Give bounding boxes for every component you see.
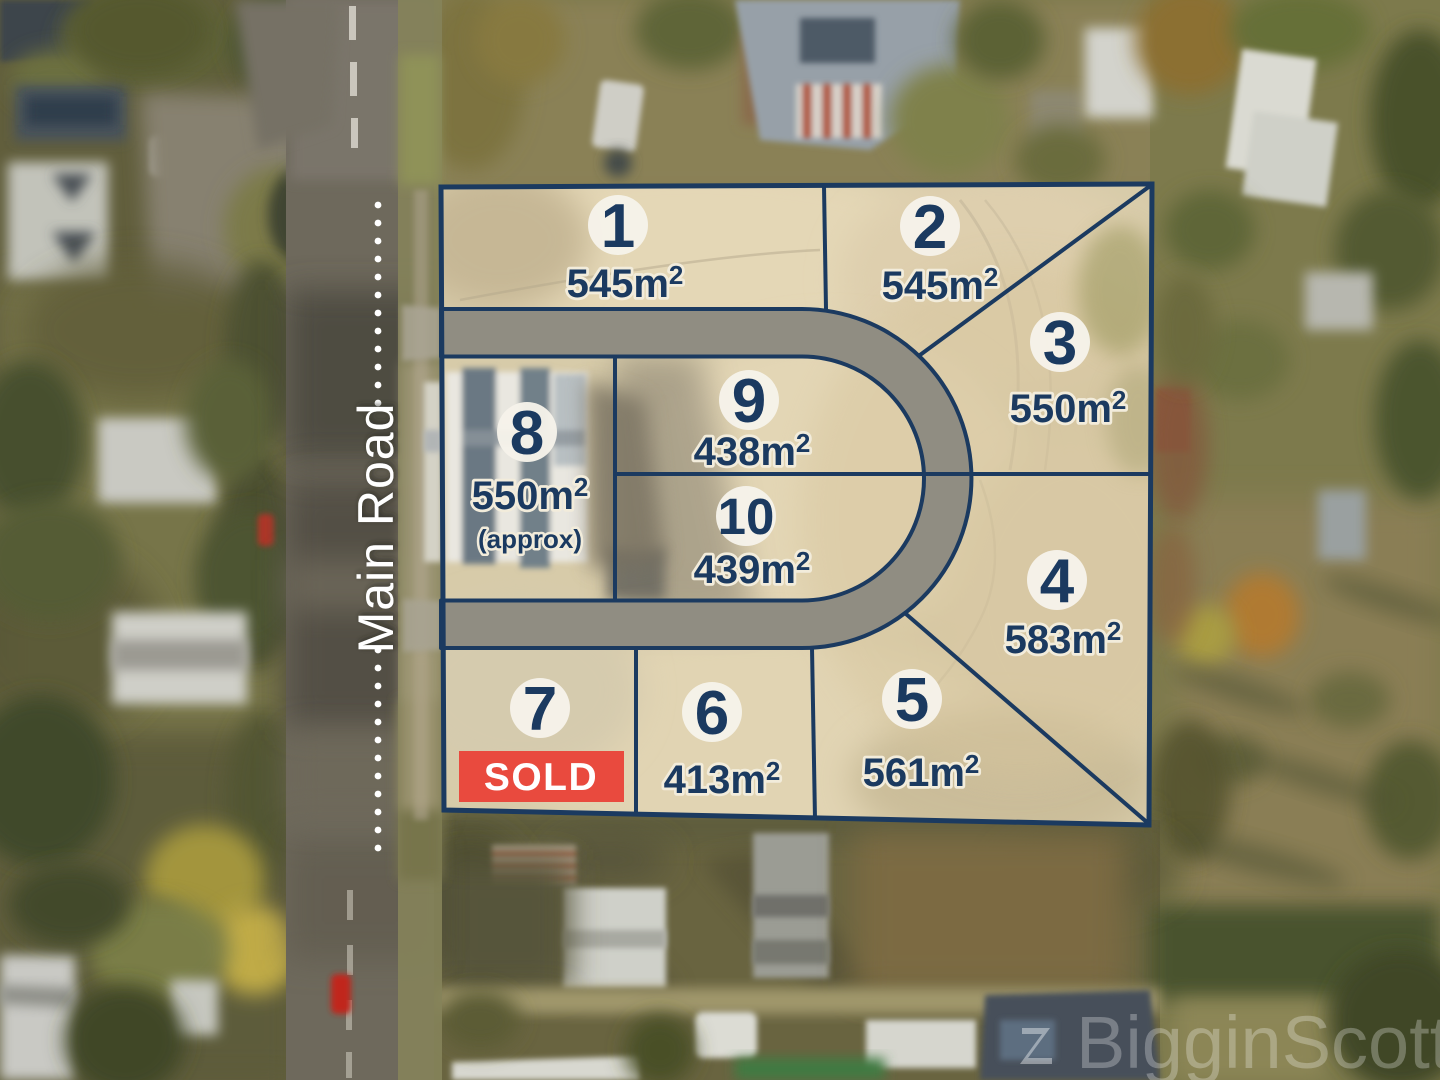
svg-text:583m2: 583m2 [1005, 616, 1122, 662]
svg-text:439m2: 439m2 [694, 546, 811, 592]
svg-text:4: 4 [1040, 547, 1075, 616]
svg-text:413m2: 413m2 [664, 756, 781, 802]
svg-text:2: 2 [913, 193, 947, 262]
svg-text:3: 3 [1043, 309, 1077, 378]
svg-text:8: 8 [510, 399, 544, 468]
svg-text:545m2: 545m2 [882, 262, 999, 308]
svg-text:(approx): (approx) [478, 524, 582, 554]
svg-text:5: 5 [895, 666, 929, 735]
svg-text:6: 6 [695, 679, 729, 748]
svg-text:550m2: 550m2 [1010, 385, 1127, 431]
svg-text:9: 9 [732, 367, 766, 436]
svg-text:1: 1 [601, 192, 635, 261]
svg-text:10: 10 [718, 488, 775, 545]
svg-text:Main Road: Main Road [348, 403, 404, 654]
svg-text:561m2: 561m2 [863, 749, 980, 795]
svg-text:550m2: 550m2 [472, 472, 589, 518]
svg-text:438m2: 438m2 [694, 428, 811, 474]
svg-text:545m2: 545m2 [567, 260, 684, 306]
svg-text:SOLD: SOLD [484, 756, 598, 799]
svg-text:BigginScott: BigginScott [1076, 1001, 1440, 1080]
svg-text:7: 7 [523, 675, 557, 744]
